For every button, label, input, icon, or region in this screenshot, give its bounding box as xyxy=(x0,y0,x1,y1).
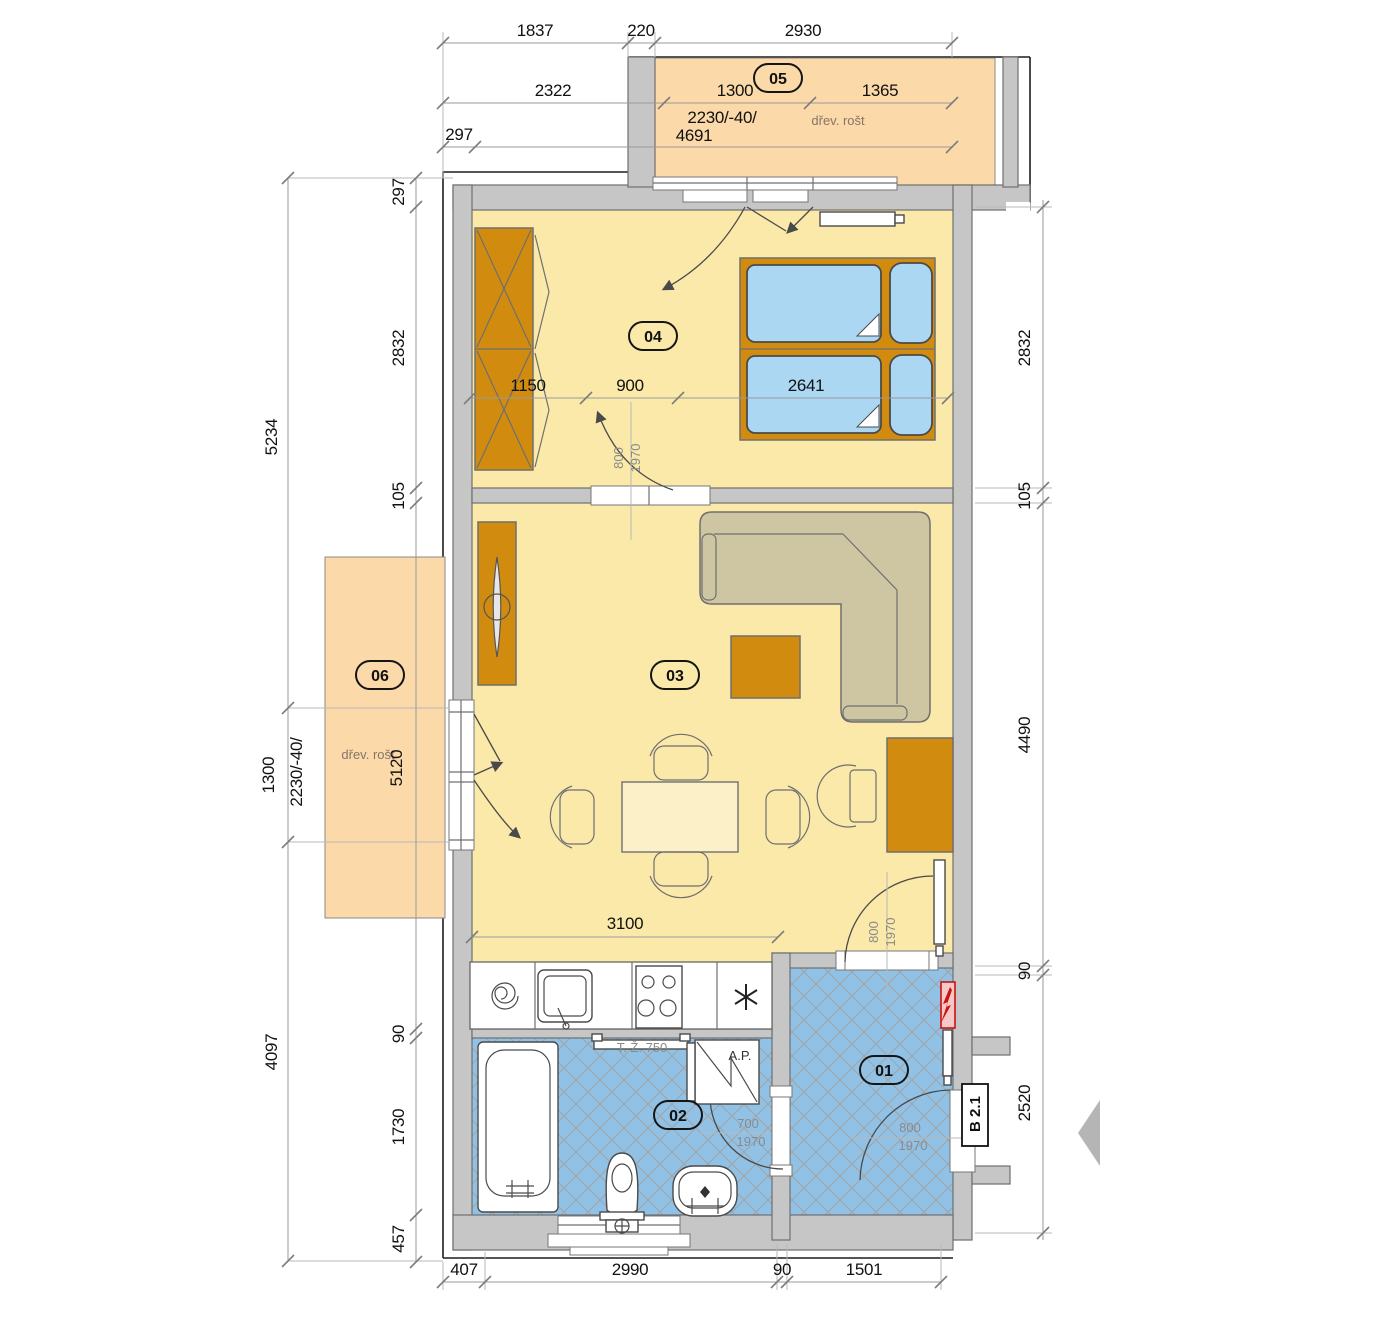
entry-step-top xyxy=(972,1037,1010,1055)
dim-top-2930: 2930 xyxy=(785,21,822,40)
hall-mirror xyxy=(943,1030,952,1085)
room-label-04: 04 xyxy=(644,329,662,346)
wall-bottom xyxy=(453,1215,953,1250)
dim-left-105: 105 xyxy=(389,482,408,509)
bedroom-radiator xyxy=(820,212,904,226)
room-label-06: 06 xyxy=(371,668,389,685)
dim-bottom-90: 90 xyxy=(773,1260,791,1279)
entry-door-width: 800 xyxy=(899,1120,921,1135)
desk-cabinet xyxy=(887,738,953,852)
floor-plan-page: B 2.1 xyxy=(0,0,1380,1320)
dim-left-door-spec: 2230/-40/ xyxy=(287,737,306,807)
wall-right xyxy=(953,185,972,1240)
living-radiator xyxy=(934,860,945,956)
dim-right-105: 105 xyxy=(1015,482,1034,509)
dim-bottom-2990: 2990 xyxy=(612,1260,649,1279)
entry-step-bottom xyxy=(972,1166,1010,1184)
room-label-03: 03 xyxy=(666,668,684,685)
washbasin xyxy=(673,1166,737,1216)
dim-left-457: 457 xyxy=(389,1225,408,1252)
dim-living-3100: 3100 xyxy=(607,914,644,933)
bedroom-door-width: 800 xyxy=(611,447,626,469)
kitchen-sink xyxy=(538,970,592,1029)
dim-top-1365: 1365 xyxy=(862,81,899,100)
towel-radiator-label: T. Ž. 750 xyxy=(617,1040,668,1055)
wall-bedroom-living xyxy=(472,488,953,503)
living-hall-door-height: 1970 xyxy=(883,918,898,947)
room-label-05: 05 xyxy=(769,71,787,88)
dining-table xyxy=(622,782,738,852)
dim-right-4490: 4490 xyxy=(1015,717,1034,754)
dim-left-297: 297 xyxy=(389,178,408,205)
dim-top-297: 297 xyxy=(445,125,472,144)
dim-top-1837: 1837 xyxy=(517,21,554,40)
bath-door-width: 700 xyxy=(737,1116,759,1131)
dim-bedroom-900: 900 xyxy=(616,376,643,395)
dim-right-2832: 2832 xyxy=(1015,330,1034,367)
room-label-01: 01 xyxy=(875,1063,893,1080)
hallway-tile-hatch xyxy=(772,955,953,1240)
dim-right-90: 90 xyxy=(1015,962,1034,980)
entry-direction-arrow xyxy=(1078,1100,1100,1166)
balcony-left-floor xyxy=(325,557,445,918)
dim-bottom-407: 407 xyxy=(450,1260,477,1279)
dim-left-5234: 5234 xyxy=(262,419,281,456)
entry-door-height: 1970 xyxy=(899,1138,928,1153)
dim-left-90: 90 xyxy=(389,1025,408,1043)
balcony-pillar-right xyxy=(1003,57,1018,187)
balcony-top-grate-note: dřev. rošt xyxy=(811,113,865,128)
bedroom-door-height: 1970 xyxy=(628,444,643,473)
pillow-bottom xyxy=(890,355,932,435)
dim-top-2322: 2322 xyxy=(535,81,572,100)
dim-top-220: 220 xyxy=(627,21,654,40)
dim-top-4691: 4691 xyxy=(676,126,713,145)
dim-left-2832: 2832 xyxy=(389,330,408,367)
dim-balcony-5120: 5120 xyxy=(387,750,406,787)
balcony-pillar-left xyxy=(628,57,655,187)
bathtub xyxy=(478,1042,558,1212)
electrical-box xyxy=(941,982,955,1028)
dim-bedroom-1150: 1150 xyxy=(510,376,545,395)
floor-plan-canvas: B 2.1 xyxy=(0,0,1380,1320)
dim-bottom-1501: 1501 xyxy=(846,1260,883,1279)
kitchen xyxy=(470,962,772,1029)
dim-bedroom-2641: 2641 xyxy=(788,376,825,395)
dim-left-1730: 1730 xyxy=(389,1109,408,1146)
dim-left-1300: 1300 xyxy=(259,757,278,794)
washing-machine-label: A.P. xyxy=(729,1048,752,1063)
stove xyxy=(636,966,682,1028)
washing-machine: A.P. xyxy=(687,1040,759,1104)
dim-top-1300: 1300 xyxy=(717,81,754,100)
double-bed xyxy=(740,258,935,440)
coffee-table xyxy=(731,636,800,698)
mattress-top xyxy=(747,265,881,342)
bath-door-height: 1970 xyxy=(737,1134,766,1149)
pillow-top xyxy=(890,263,932,343)
dim-left-4097: 4097 xyxy=(262,1034,281,1071)
wall-bathroom-top xyxy=(472,1029,772,1038)
tv-cabinet xyxy=(478,522,516,685)
dim-top-window-spec: 2230/-40/ xyxy=(687,108,757,127)
dim-right-2520: 2520 xyxy=(1015,1085,1034,1122)
entry-door-tag: B 2.1 xyxy=(967,1096,984,1132)
room-label-02: 02 xyxy=(669,1108,687,1125)
living-hall-door-width: 800 xyxy=(866,921,881,943)
